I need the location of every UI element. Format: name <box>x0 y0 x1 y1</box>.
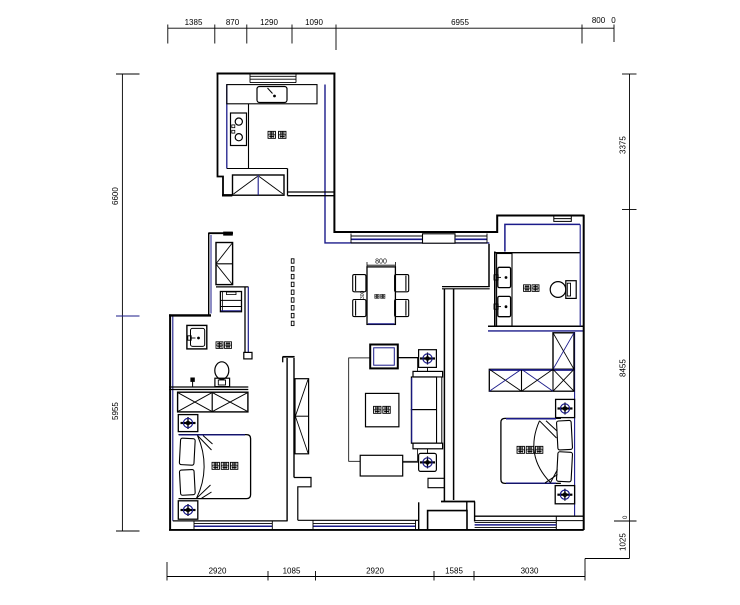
svg-text:2920: 2920 <box>366 567 384 576</box>
svg-text:6955: 6955 <box>451 18 469 27</box>
svg-text:1385: 1385 <box>185 18 203 27</box>
svg-text:3030: 3030 <box>521 567 539 576</box>
svg-text:1090: 1090 <box>305 18 323 27</box>
svg-text:1085: 1085 <box>283 567 301 576</box>
svg-text:1290: 1290 <box>260 18 278 27</box>
svg-text:800: 800 <box>375 259 387 266</box>
svg-text:800: 800 <box>592 16 606 25</box>
svg-text:8455: 8455 <box>619 359 628 377</box>
svg-text:2920: 2920 <box>209 567 227 576</box>
svg-text:1585: 1585 <box>445 567 463 576</box>
svg-text:5955: 5955 <box>111 402 120 420</box>
svg-text:1025: 1025 <box>619 533 628 551</box>
svg-text:6600: 6600 <box>111 187 120 205</box>
svg-text:3375: 3375 <box>619 136 628 154</box>
svg-text:300: 300 <box>360 290 366 299</box>
svg-text:870: 870 <box>226 18 240 27</box>
svg-text:0: 0 <box>611 16 616 25</box>
